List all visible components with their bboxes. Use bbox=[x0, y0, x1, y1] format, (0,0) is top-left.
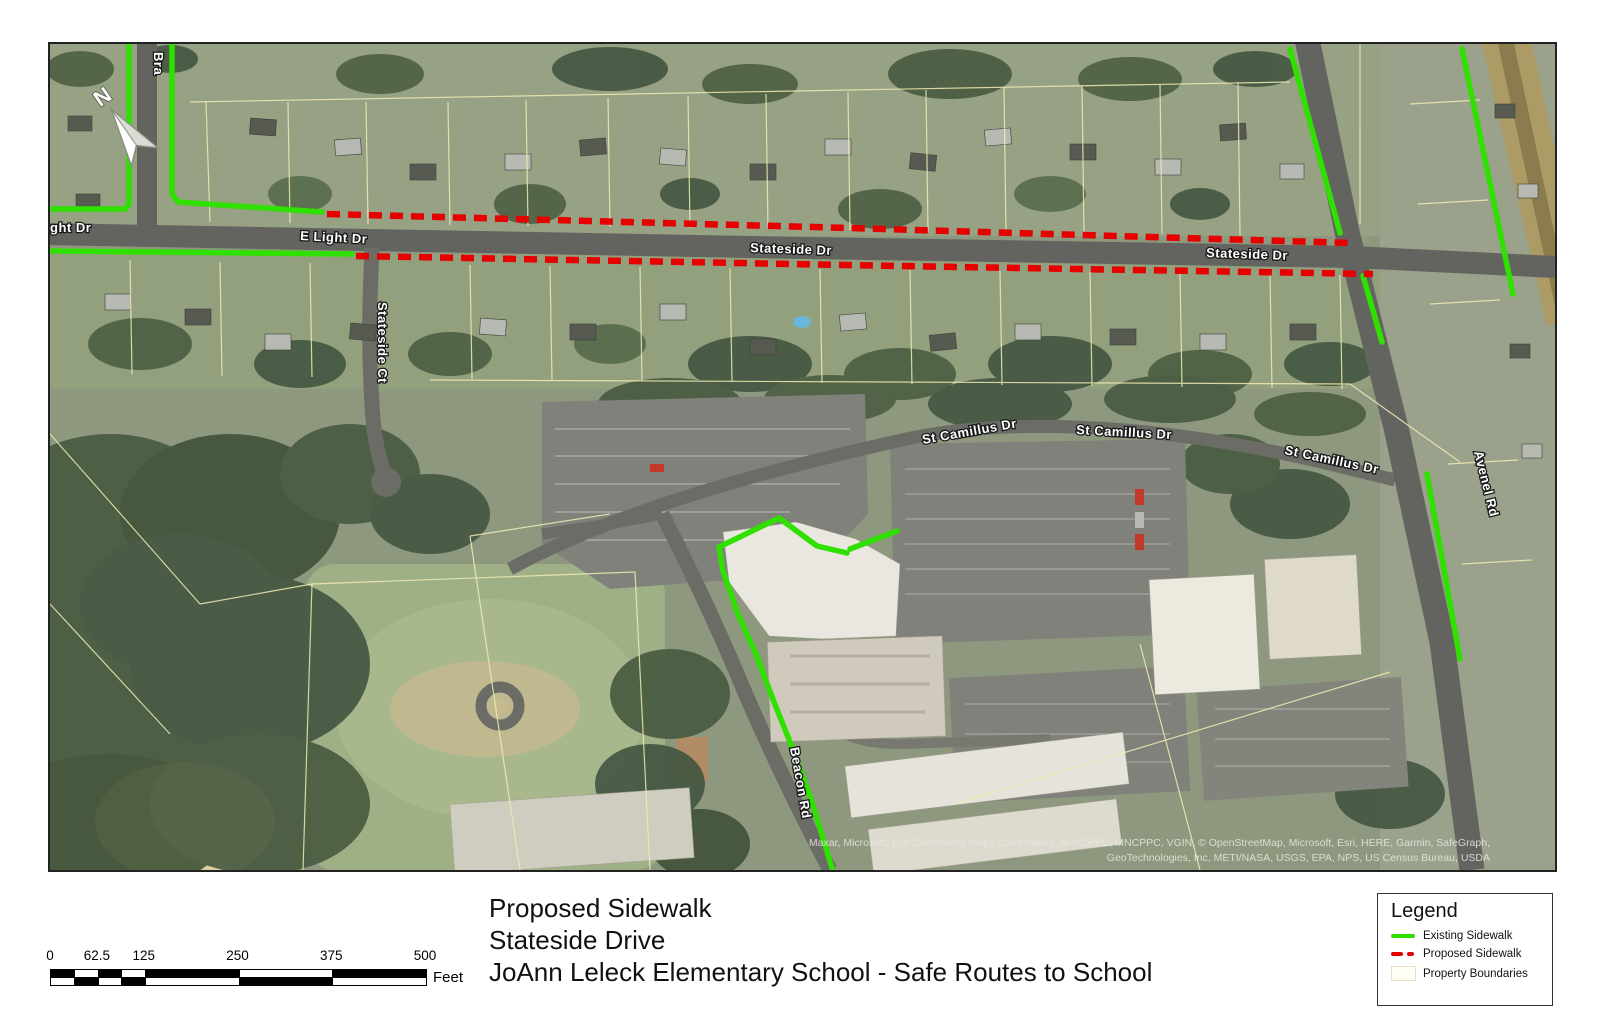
scale-tick-4: 375 bbox=[320, 948, 343, 963]
legend-item-existing-sidewalk: Existing Sidewalk bbox=[1391, 930, 1552, 942]
legend-item-property-boundaries: Property Boundaries bbox=[1391, 966, 1552, 981]
legend-item-label: Proposed Sidewalk bbox=[1423, 948, 1521, 960]
street-label-ght-dr: ght Dr bbox=[50, 220, 91, 235]
attribution-line-1: Maxar, Microsoft, Esri Community Maps Co… bbox=[809, 837, 1490, 849]
legend-item-label: Property Boundaries bbox=[1423, 968, 1528, 980]
scale-tick-0: 0 bbox=[46, 948, 54, 963]
legend: Legend Existing Sidewalk Proposed Sidewa… bbox=[1377, 893, 1553, 1006]
map-canvas: N Bra ght Dr E Light Dr Stateside Dr Sta… bbox=[48, 42, 1557, 872]
proposed-sidewalk-swatch bbox=[1391, 952, 1417, 956]
legend-title: Legend bbox=[1391, 900, 1552, 923]
property-boundaries-swatch bbox=[1391, 966, 1417, 981]
attribution-line-2: GeoTechnologies, Inc, METI/NASA, USGS, E… bbox=[1107, 852, 1490, 864]
street-label-stateside-ct: Stateside Ct bbox=[375, 302, 390, 383]
title-line-2: Stateside Drive bbox=[489, 924, 1152, 956]
scale-tick-5: 500 bbox=[414, 948, 437, 963]
scale-tick-3: 250 bbox=[226, 948, 249, 963]
street-label-stateside-dr-2: Stateside Dr bbox=[1206, 245, 1288, 263]
street-label-bra: Bra bbox=[151, 52, 166, 75]
existing-sidewalk-swatch bbox=[1391, 934, 1417, 938]
title-line-1: Proposed Sidewalk bbox=[489, 892, 1152, 924]
scale-tick-2: 125 bbox=[132, 948, 155, 963]
legend-item-proposed-sidewalk: Proposed Sidewalk bbox=[1391, 948, 1552, 960]
legend-item-label: Existing Sidewalk bbox=[1423, 930, 1512, 942]
page: { "map": { "north_label": "N", "street_l… bbox=[0, 0, 1600, 1035]
scale-bar-graphic bbox=[50, 969, 427, 986]
street-label-stateside-dr-1: Stateside Dr bbox=[750, 240, 832, 258]
scale-tick-1: 62.5 bbox=[84, 948, 110, 963]
title-line-3: JoAnn Leleck Elementary School - Safe Ro… bbox=[489, 956, 1152, 988]
scale-unit-label: Feet bbox=[433, 969, 463, 986]
title-block: Proposed Sidewalk Stateside Drive JoAnn … bbox=[489, 892, 1152, 988]
scale-bar: 0 62.5 125 250 375 500 Feet bbox=[50, 948, 520, 992]
